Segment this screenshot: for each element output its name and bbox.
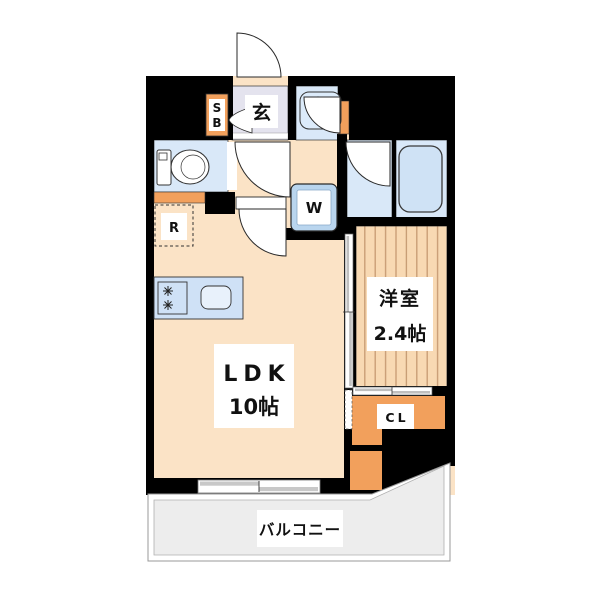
western-size-label: 2.4帖 [374,322,427,345]
wall-hall-washroom [337,134,347,240]
shoe-box-label-s: S [213,101,222,115]
ldk-label: LDK [223,362,290,387]
ldk-door-panel [236,197,286,209]
entrance-door-arc [237,33,281,77]
wall-top-right [349,76,455,140]
window-pane [200,482,259,486]
sliding-door-pane [392,391,430,394]
door-pocket [345,390,352,429]
sliding-door-pane [347,236,350,312]
washer-label: W [306,199,323,217]
entrance-label: 玄 [252,101,271,124]
floor-plan-svg: 玄 S B W R LDK 10帖 洋室 2.4帖 CL バルコニー [0,0,600,600]
wall-washroom-bottom [347,217,455,226]
entrance-step [232,133,288,139]
closet-label: CL [385,410,408,425]
window-pane [259,487,318,491]
balcony-label: バルコニー [259,521,341,539]
floor-plan-canvas: 玄 S B W R LDK 10帖 洋室 2.4帖 CL バルコニー [0,0,600,600]
bathtub-icon [399,146,442,212]
shoe-box-label-b: B [212,116,221,130]
kitchen-sink-icon [201,286,231,309]
toilet-shelf [154,192,205,203]
wall-toilet-stub [205,192,235,214]
sliding-door-pane [355,389,392,392]
sliding-door-pane [349,312,352,386]
ldk-size-label: 10帖 [229,395,279,419]
wall-wash-bath-divider [392,140,396,218]
wall-entrance-divider [288,76,296,140]
western-label: 洋室 [379,287,421,310]
wall-left [146,76,154,495]
fridge-label: R [169,221,179,236]
pipe-space-floor [350,451,382,490]
